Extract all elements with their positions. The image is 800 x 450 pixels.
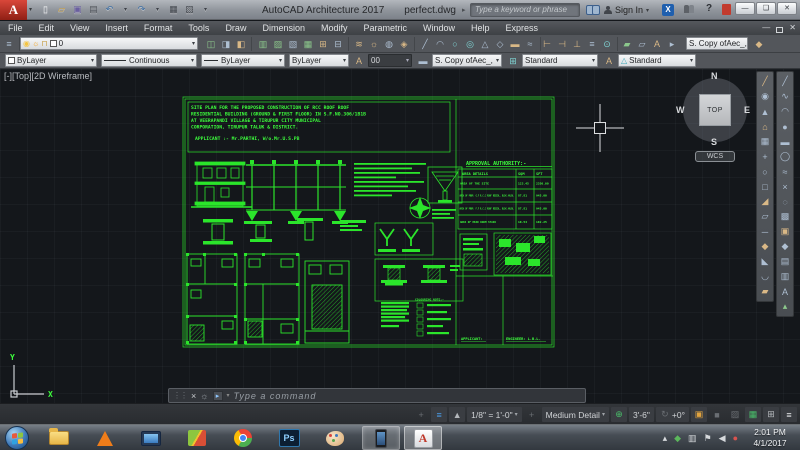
floor-plan-a	[186, 253, 237, 344]
color-caret-icon: ▾	[89, 57, 94, 64]
sheet-title-line: SITE PLAN FOR THE PROPOSED CONSTRUCTION …	[191, 105, 349, 111]
window-title: AutoCAD Architecture 2017 perfect.dwg	[262, 0, 456, 20]
legend-title: COLOURING NOTE:-	[415, 298, 444, 302]
toolbar-icon[interactable]: ◢	[758, 194, 772, 209]
menu-view[interactable]: View	[62, 21, 97, 35]
addpoint-icon[interactable]: ▴	[778, 299, 792, 314]
sheetset-icon[interactable]: ▧	[183, 3, 196, 16]
dim-baseline-icon[interactable]: ≡	[585, 37, 599, 51]
document-window-controls: — ✕	[762, 21, 796, 35]
draw-dock-toolbar: ╱ ∿ ◠ ● ▬ ◯ ≈ × ◌ ▩ ▣ ◆ ▤ ▥ A ▴	[776, 71, 794, 317]
text-style-value: 00	[371, 56, 380, 65]
action-center-flag-icon[interactable]: ⚑	[704, 433, 712, 444]
cut-plane-height[interactable]: 3'-6"	[629, 407, 654, 422]
detail-level-value: Medium Detail	[546, 410, 600, 420]
toolbar-icon[interactable]: ≋	[352, 37, 366, 51]
sheet-applicant-line: APPLICANT :- Mr.PARTHI, W/o.Mr.U.S.PB	[195, 136, 300, 142]
sheet-title-line: AT VEERAPANDI VILLAGE & TIRUPUR CITY MUN…	[191, 118, 321, 124]
toolbar-icon[interactable]: ◧	[234, 37, 248, 51]
command-caret-icon[interactable]: ▾	[227, 392, 230, 399]
qat-more-icon[interactable]: ▾	[199, 3, 212, 16]
tool-style-value: S. Copy ofAec_,	[689, 39, 747, 48]
line-icon[interactable]: ╱	[778, 74, 792, 89]
toolbar-icon[interactable]: ⌂	[758, 119, 772, 134]
tray-display-icon[interactable]: ▥	[688, 433, 697, 444]
dim-style-caret-icon: ▾	[590, 57, 595, 64]
aec-style-caret-icon: ▾	[494, 57, 499, 64]
color-value: ByLayer	[17, 56, 46, 65]
angle-value: +0°	[672, 410, 685, 420]
table-header: AREA DETAILS	[462, 172, 488, 176]
viewcube-north[interactable]: N	[711, 71, 718, 81]
aec-style-value: S. Copy ofAec_,	[435, 56, 493, 65]
table-header: SQM	[518, 172, 525, 176]
menu-tools[interactable]: Tools	[180, 21, 217, 35]
taskbar-paint-button[interactable]	[316, 426, 354, 450]
command-input[interactable]: Type a command	[234, 391, 317, 401]
toolbar-icon[interactable]: ▱	[758, 209, 772, 224]
plotstyle-caret-icon: ▾	[341, 57, 346, 64]
taskbar-explorer-button[interactable]	[40, 426, 78, 450]
menu-dimension[interactable]: Dimension	[254, 21, 313, 35]
menu-modify[interactable]: Modify	[313, 21, 356, 35]
dim-aligned-icon[interactable]: ⊣	[555, 37, 569, 51]
sheet-title-line: RESIDENTIAL BUILDING (GROUND & FIRST FLO…	[191, 112, 366, 118]
table-cell: 945.00	[536, 207, 547, 211]
system-tray: ▴ ◆ ▥ ⚑ ◀ ●	[663, 426, 738, 450]
region-icon[interactable]: ▤	[778, 254, 792, 269]
layer-freeze-icon: ☼	[32, 39, 39, 48]
notification-icon[interactable]	[722, 4, 731, 15]
taskbar-clock[interactable]: 2:01 PM 4/1/2017	[744, 427, 796, 448]
chamfer-icon[interactable]: ◣	[758, 254, 772, 269]
sheet-borders	[183, 97, 554, 347]
table-cell: AREA OF THE SITE	[460, 182, 489, 186]
save-icon[interactable]: ▣	[71, 3, 84, 16]
floor-plan-c	[305, 261, 349, 343]
toolbar-icon[interactable]: ◫	[204, 37, 218, 51]
scale-caret-icon: ▾	[515, 411, 518, 418]
table-cell: 2350.00	[536, 182, 549, 186]
crosshair-cursor	[576, 104, 624, 152]
approval-title: APPROVAL AUTHORITY:-	[466, 161, 526, 167]
sign-in-label: Sign In	[615, 5, 643, 15]
wcs-menu[interactable]: WCS	[695, 151, 735, 162]
detail-forks	[375, 223, 433, 255]
toolbar-icon[interactable]: ◍	[382, 37, 396, 51]
donut-tool-icon[interactable]: ◎	[463, 37, 477, 51]
menu-insert[interactable]: Insert	[97, 21, 136, 35]
undo-icon[interactable]: ↶	[103, 3, 116, 16]
workspace-switch-icon[interactable]: ▦	[745, 407, 761, 422]
table-header: SFT	[536, 172, 543, 176]
colour-legend	[417, 303, 451, 336]
menu-bar: File Edit View Insert Format Tools Draw …	[0, 21, 800, 35]
angle-readout[interactable]: ↻ +0°	[656, 407, 689, 422]
color-select[interactable]: ByLayer ▾	[5, 54, 97, 67]
linetype-select[interactable]: Continuous ▾	[101, 54, 197, 67]
isolate-objects-icon[interactable]: ▣	[691, 407, 707, 422]
layer-value: 0	[59, 39, 63, 48]
exchange-apps-icon[interactable]: X	[662, 4, 674, 16]
menu-help[interactable]: Help	[463, 21, 498, 35]
text-tool-icon[interactable]: A	[650, 37, 664, 51]
minimize-button[interactable]: —	[735, 2, 755, 15]
antivirus-icon	[188, 430, 206, 446]
ucs-icon: X Y	[10, 353, 53, 399]
arc-tool-icon[interactable]: ◠	[433, 37, 447, 51]
menu-format[interactable]: Format	[136, 21, 181, 35]
undo-caret-icon[interactable]: ▾	[119, 3, 132, 16]
properties-toolbar: ByLayer ▾ Continuous ▾ ByLayer ▾ ByLayer…	[0, 53, 800, 69]
help-icon[interactable]: ?	[706, 3, 712, 14]
annot-style-caret-icon: ▾	[688, 57, 693, 64]
menu-file[interactable]: File	[0, 21, 31, 35]
redo-icon[interactable]: ↷	[135, 3, 148, 16]
computer-icon	[141, 431, 161, 446]
snap-mode-icon[interactable]: ▲	[449, 407, 465, 422]
sheet-title-line: CORPORATION, TIRUPUR TALUK & DISTRICT.	[191, 125, 298, 131]
floor-plan-b	[244, 253, 299, 344]
annotation-scale-select[interactable]: 1/8" = 1'-0" ▾	[467, 407, 521, 422]
grid-toggle-icon[interactable]: ≡	[431, 407, 447, 422]
customization-menu-icon[interactable]: ≡	[781, 407, 797, 422]
taskbar-phone-app-button[interactable]	[362, 426, 400, 450]
table-cell: AREA OF PROP. G.F R.C.C ROOF RESIDL. BLD…	[460, 195, 515, 198]
boundary-icon[interactable]: ◆	[778, 239, 792, 254]
annotative-icon: △	[621, 56, 627, 65]
hardware-accel-icon[interactable]: ■	[709, 407, 725, 422]
connect-icon[interactable]	[684, 5, 696, 14]
command-line[interactable]: ⋮⋮ × ☼ ▸ ▾ Type a command	[168, 388, 586, 403]
array-icon[interactable]: ▦	[758, 134, 772, 149]
dim-center-icon[interactable]: ⊙	[600, 37, 614, 51]
toolbar-icon[interactable]: ▰	[620, 37, 634, 51]
tray-status-icon[interactable]: ◆	[674, 433, 681, 444]
aec-style-icon[interactable]: ▬	[416, 54, 430, 68]
tool-style-select[interactable]: S. Copy ofAec_, ▾	[686, 37, 748, 50]
folder-icon	[49, 431, 69, 445]
command-grip-handle[interactable]: ⋮⋮	[173, 391, 187, 400]
maximize-button[interactable]: ❑	[756, 2, 776, 15]
arc-icon[interactable]: ◠	[778, 104, 792, 119]
circle-icon[interactable]: ◯	[778, 149, 792, 164]
section-grid-drawing	[244, 160, 348, 224]
open-file-icon[interactable]: ▱	[55, 3, 68, 16]
sign-in-button[interactable]: Sign In ▾	[604, 3, 649, 17]
polygon-tool-icon[interactable]: △	[478, 37, 492, 51]
quick-access-toolbar: ▯ ▱ ▣ ▤ ↶ ▾ ↷ ▾ ▦ ▧ ▾	[39, 3, 212, 16]
add-scales-icon[interactable]: +	[524, 407, 540, 422]
vlc-cone-icon	[97, 431, 113, 446]
close-button[interactable]: ✕	[777, 2, 797, 15]
fillet-icon[interactable]: ◡	[758, 269, 772, 284]
photoshop-icon: Ps	[279, 429, 300, 447]
toolbar-icon[interactable]: ▨	[271, 37, 285, 51]
dim-angular-icon[interactable]: ⊥	[570, 37, 584, 51]
trim-icon[interactable]: ─	[758, 224, 772, 239]
revcloud-icon[interactable]: ≈	[778, 164, 792, 179]
start-button[interactable]	[5, 426, 29, 450]
dim-style-value: Standard	[525, 56, 557, 65]
notes-block	[354, 163, 456, 327]
layer-caret-icon: ▾	[190, 40, 195, 47]
toolbar-icon[interactable]: ⊞	[316, 37, 330, 51]
gradient-icon[interactable]: ▣	[778, 224, 792, 239]
tray-alert-icon[interactable]: ●	[733, 433, 738, 443]
dim-style-icon[interactable]: ⊞	[506, 54, 520, 68]
toolbar-icon[interactable]: ◆	[758, 239, 772, 254]
window-controls: — ❑ ✕	[735, 2, 797, 15]
taskbar-computer-button[interactable]	[132, 426, 170, 450]
taskbar-antivirus-button[interactable]	[178, 426, 216, 450]
global-cut-plane-icon[interactable]: ⊕	[611, 407, 627, 422]
status-bar: + ≡ ▲ 1/8" = 1'-0" ▾ + Medium Detail ▾ ⊕…	[0, 403, 800, 424]
windows-taskbar: Ps A ▴ ◆ ▥ ⚑ ◀ ● 2:01 PM 4/1/2017	[0, 424, 800, 450]
new-file-icon[interactable]: ▯	[39, 3, 52, 16]
annot-style-select[interactable]: △ Standard ▾	[618, 54, 696, 67]
model-paper-icon[interactable]: +	[413, 407, 429, 422]
annot-style-icon[interactable]: A	[602, 54, 616, 68]
toolbar-icon[interactable]: ▸	[665, 37, 679, 51]
polyline-tool-icon[interactable]: ▬	[508, 37, 522, 51]
taskbar-photoshop-button[interactable]: Ps	[270, 426, 308, 450]
toolbar-icon[interactable]: ▥	[256, 37, 270, 51]
text-style-select[interactable]: 00 ▾	[368, 54, 412, 67]
scale-icon[interactable]: □	[758, 179, 772, 194]
autocad-window: A ▾ ▯ ▱ ▣ ▤ ↶ ▾ ↷ ▾ ▦ ▧ ▾ AutoCAD Archit…	[0, 0, 800, 450]
cut-plane-value: 3'-6"	[633, 410, 650, 420]
lineweight-value: ByLayer	[221, 56, 250, 65]
toolbar-icon[interactable]: ▱	[635, 37, 649, 51]
linetype-caret-icon: ▾	[189, 57, 194, 64]
print-icon[interactable]: ▤	[87, 3, 100, 16]
table-cell: 87.81	[518, 207, 527, 211]
viewcube-top-face[interactable]: TOP	[699, 94, 731, 126]
mtext-icon[interactable]: A	[778, 284, 792, 299]
rotate-icon[interactable]: ○	[758, 164, 772, 179]
explode-icon[interactable]: ▰	[758, 284, 772, 299]
volume-icon[interactable]: ◀	[719, 433, 726, 444]
layer-select[interactable]: ◉ ☼ ⊓ 0 ▾	[20, 37, 198, 50]
redo-caret-icon[interactable]: ▾	[151, 3, 164, 16]
command-recent-icon[interactable]: ▸	[213, 391, 223, 401]
menu-parametric[interactable]: Parametric	[356, 21, 416, 35]
table-cell: 945.00	[536, 194, 547, 198]
doc-restore-icon[interactable]	[776, 27, 783, 33]
detail-level-select[interactable]: Medium Detail ▾	[542, 407, 609, 422]
sign-in-caret-icon: ▾	[646, 7, 649, 14]
doc-close-icon[interactable]: ✕	[789, 21, 796, 35]
menu-edit[interactable]: Edit	[31, 21, 63, 35]
title-bar: A ▾ ▯ ▱ ▣ ▤ ↶ ▾ ↷ ▾ ▦ ▧ ▾ AutoCAD Archit…	[0, 0, 800, 20]
layers-toolbar: ≡ ◉ ☼ ⊓ 0 ▾ ◫ ◨ ◧ ▥ ▨ ▧ ▦ ⊞ ⊟ ≋ ☼ ◍ ◈	[0, 35, 800, 53]
table-cell: AREA OF HEAD ROOM STAIR	[460, 220, 496, 224]
menu-express[interactable]: Express	[498, 21, 547, 35]
toolbar-icon[interactable]: ◆	[752, 37, 766, 51]
viewport-controls-label[interactable]: [-][Top][2D Wireframe]	[4, 71, 92, 81]
layer-color-swatch	[50, 40, 57, 47]
search-arrow-icon[interactable]: ▸	[462, 6, 466, 14]
lineweight-caret-icon: ▾	[277, 57, 282, 64]
taskbar-vlc-button[interactable]	[86, 426, 124, 450]
ucs-y-label: Y	[10, 353, 15, 362]
toolbar-icon[interactable]: ⊟	[331, 37, 345, 51]
command-customize-icon[interactable]: ☼	[200, 391, 208, 401]
toolbar-icon[interactable]: ◨	[219, 37, 233, 51]
tool-style-caret-icon: ▾	[747, 40, 748, 47]
rectangle-tool-icon[interactable]: ◇	[493, 37, 507, 51]
annotation-scale-value: 1/8" = 1'-0"	[471, 410, 512, 420]
clean-screen-icon[interactable]: ⊞	[763, 407, 779, 422]
viewcube-west[interactable]: W	[676, 105, 685, 115]
viewcube-south[interactable]: S	[711, 137, 717, 147]
phone-icon	[375, 429, 387, 448]
workspace-icon[interactable]: ▦	[167, 3, 180, 16]
viewcube[interactable]: N E S W TOP	[678, 73, 752, 147]
app-menu-button[interactable]: A	[0, 0, 27, 20]
dim-linear-icon[interactable]: ⊢	[540, 37, 554, 51]
table-icon[interactable]: ▥	[778, 269, 792, 284]
line-tool-icon[interactable]: ╱	[418, 37, 432, 51]
toolbar-icon[interactable]: ◉	[758, 89, 772, 104]
circle-tool-icon[interactable]: ○	[448, 37, 462, 51]
rectangle-icon[interactable]: ▬	[778, 134, 792, 149]
table-cell: 10.54	[518, 220, 527, 224]
annot-style-value: Standard	[629, 56, 661, 65]
menu-window[interactable]: Window	[415, 21, 463, 35]
funnel-detail	[428, 167, 462, 203]
text-style-icon[interactable]: A	[352, 54, 366, 68]
toolbar-icon[interactable]: ╱	[758, 74, 772, 89]
mirror-icon[interactable]: ▲	[758, 104, 772, 119]
tray-expand-icon[interactable]: ▴	[663, 433, 668, 444]
polyline-icon[interactable]: ∿	[778, 89, 792, 104]
spline-tool-icon[interactable]: ≈	[523, 37, 537, 51]
clock-date: 4/1/2017	[744, 438, 796, 449]
ellipse-icon[interactable]: ◌	[778, 194, 792, 209]
document-title: perfect.dwg	[404, 5, 456, 16]
layer-properties-icon[interactable]: ≡	[2, 37, 16, 51]
command-close-icon[interactable]: ×	[191, 391, 196, 401]
toolbar-icon[interactable]: ▧	[286, 37, 300, 51]
elevation-drawing	[191, 162, 252, 207]
layer-on-icon: ◉	[23, 39, 30, 48]
autocad-icon: A	[414, 429, 433, 448]
table-cell: 123.45	[518, 182, 529, 186]
move-icon[interactable]: +	[758, 149, 772, 164]
rotate-icon: ↻	[660, 407, 670, 422]
chrome-icon	[234, 429, 252, 447]
detail-caret-icon: ▾	[602, 411, 605, 418]
linetype-value: Continuous	[129, 56, 169, 65]
plotstyle-value: ByLayer	[292, 56, 321, 65]
ucs-x-label: X	[48, 390, 53, 399]
hatch-icon[interactable]: ▩	[778, 209, 792, 224]
table-cell: AREA OF PROP. F.F R.C.C ROOF RESIDL. BLD…	[460, 208, 515, 211]
taskbar-autocad-button[interactable]: A	[404, 426, 442, 450]
modify-dock-toolbar: ╱ ◉ ▲ ⌂ ▦ + ○ □ ◢ ▱ ─ ◆ ◣ ◡ ▰	[756, 71, 774, 302]
lineweight-select[interactable]: ByLayer ▾	[201, 54, 285, 67]
color-swatch	[8, 57, 15, 64]
toolbar-icon[interactable]: ▦	[301, 37, 315, 51]
table-cell: 102.25	[536, 220, 547, 224]
aec-style-select[interactable]: S. Copy ofAec_, ▾	[432, 54, 502, 67]
spline-icon[interactable]: ×	[778, 179, 792, 194]
taskbar-chrome-button[interactable]	[224, 426, 262, 450]
clock-time: 2:01 PM	[744, 427, 796, 438]
layer-lock-icon: ⊓	[41, 39, 47, 48]
dim-style-select[interactable]: Standard ▾	[522, 54, 598, 67]
trusted-path-icon[interactable]: ▨	[727, 407, 743, 422]
site-plan-block	[460, 233, 551, 275]
app-title: AutoCAD Architecture 2017	[262, 5, 384, 16]
point-icon[interactable]: ●	[778, 119, 792, 134]
status-toggles: + ≡ ▲ 1/8" = 1'-0" ▾ + Medium Detail ▾ ⊕…	[413, 406, 797, 423]
pedestal-details	[375, 259, 463, 301]
engineer-label: ENGINEER: L.B.L.	[506, 337, 541, 341]
linetype-sample	[104, 60, 126, 61]
doc-minimize-icon[interactable]: —	[762, 21, 770, 35]
beam-details	[203, 218, 366, 245]
plotstyle-select[interactable]: ByLayer ▾	[289, 54, 349, 67]
search-input[interactable]: Type a keyword or phrase	[470, 3, 580, 17]
user-icon	[604, 6, 612, 15]
toolbar-icon[interactable]: ◈	[397, 37, 411, 51]
table-cell: 87.81	[518, 194, 527, 198]
lineweight-sample	[204, 60, 218, 61]
text-style-caret-icon: ▾	[404, 57, 409, 64]
paint-palette-icon	[326, 431, 344, 446]
drawing-viewport[interactable]: [-][Top][2D Wireframe] N E S W TOP WCS ╱…	[0, 69, 800, 403]
search-icon[interactable]	[586, 5, 598, 14]
toolbar-icon[interactable]: ☼	[367, 37, 381, 51]
applicant-label: APPLICANT:	[461, 337, 483, 341]
windows-logo-icon	[12, 432, 23, 444]
viewcube-east[interactable]: E	[744, 105, 750, 115]
menu-draw[interactable]: Draw	[217, 21, 254, 35]
app-menu-caret-icon[interactable]: ▾	[29, 6, 32, 13]
